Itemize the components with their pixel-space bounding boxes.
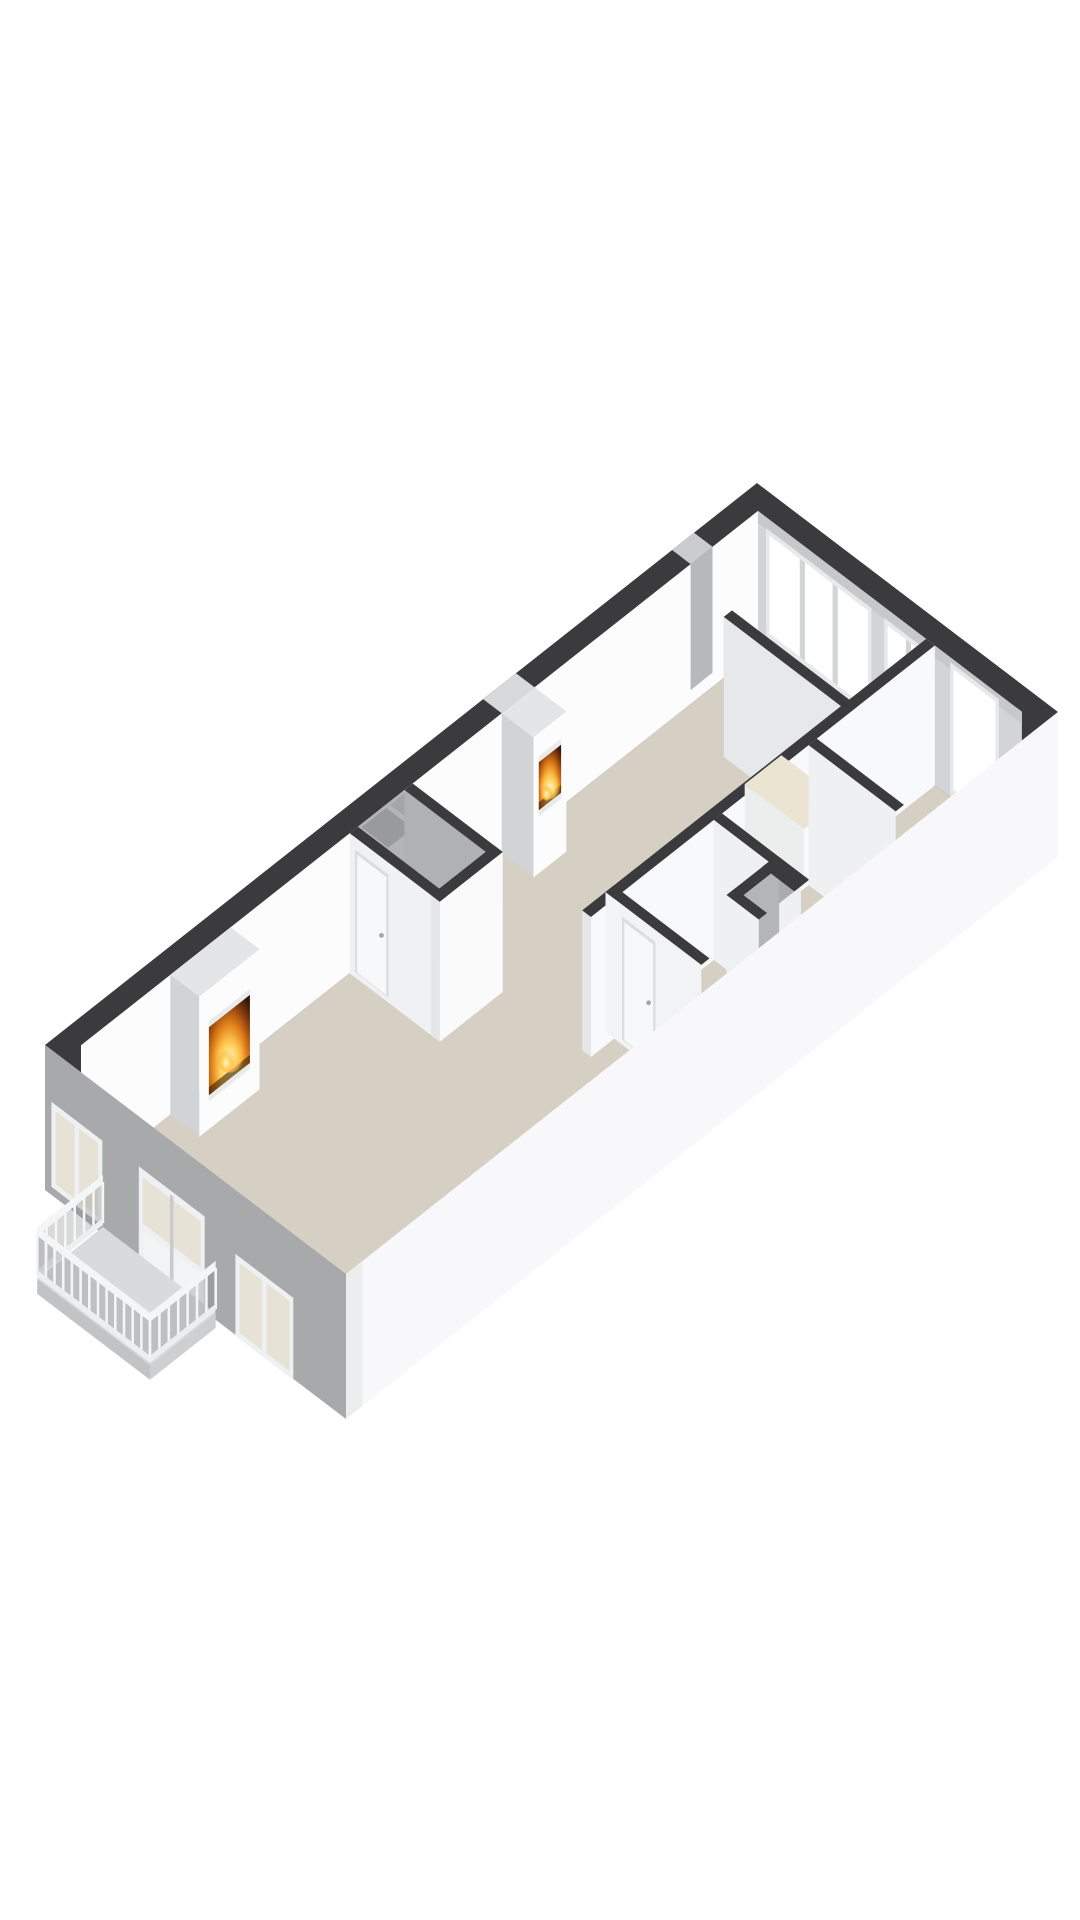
fireplace-left-side [170,975,199,1137]
sw-window-right-mullion [262,1280,267,1354]
floorplan-3d [0,0,1080,1920]
se-facade-corner-shade [346,1261,362,1419]
closet-door-leaf [357,855,386,995]
fireplace-left-flame-core [218,1047,234,1071]
closet-wall-se-end [431,895,440,1042]
nw-doorway-opening [691,547,713,690]
closet-door-handle [379,933,384,938]
floorplan-page [0,0,1080,1920]
fireplace-middle-flame-core [541,784,553,801]
ne-window-group1-mullion [800,559,805,661]
ne-window-group1-mullion [833,584,838,686]
long-wall-end [582,910,591,1057]
french-doors-gap [170,1194,174,1288]
fireplace-middle-side [502,713,534,877]
sw-window-left-mullion [75,1126,80,1203]
hall-door-handle [646,1000,651,1005]
